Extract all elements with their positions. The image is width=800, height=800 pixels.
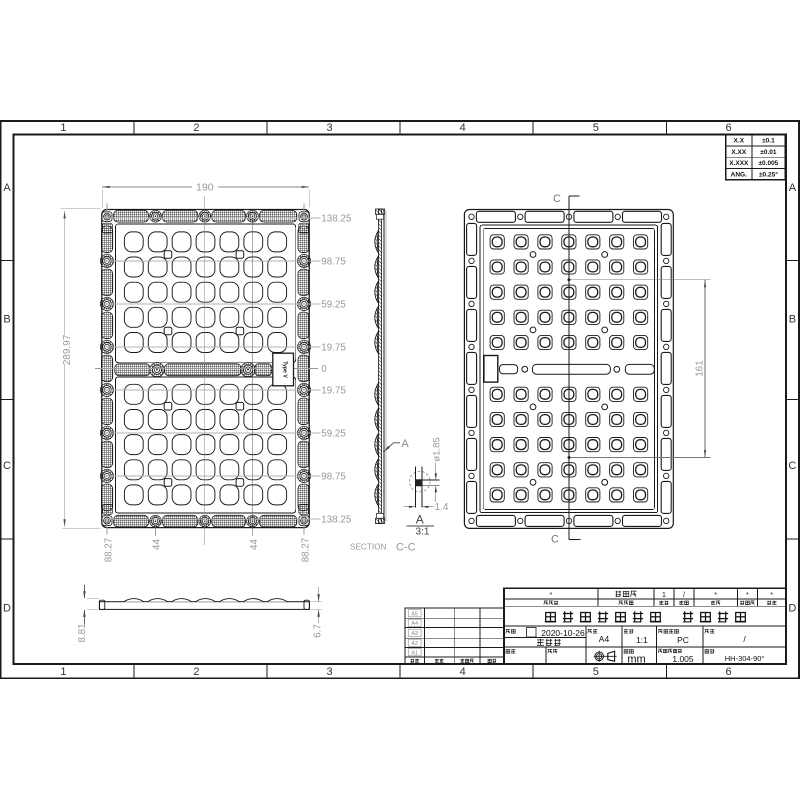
svg-text:±0.1: ±0.1 (762, 138, 775, 145)
svg-text:6.7: 6.7 (313, 624, 324, 638)
svg-text:0: 0 (321, 364, 327, 375)
svg-text:A: A (789, 182, 797, 194)
svg-text:8.81: 8.81 (77, 623, 88, 642)
svg-text:1.4: 1.4 (435, 502, 449, 513)
svg-text:A4: A4 (599, 634, 610, 644)
svg-text:±0.005: ±0.005 (758, 160, 778, 167)
svg-text:A3: A3 (411, 631, 418, 637)
svg-text:4: 4 (460, 666, 466, 678)
svg-text:59.25: 59.25 (321, 299, 346, 310)
svg-text:1: 1 (662, 592, 666, 599)
svg-text:HH-304-90°: HH-304-90° (725, 654, 765, 663)
svg-text:3:1: 3:1 (416, 527, 430, 538)
svg-text:161: 161 (694, 360, 705, 376)
svg-text:*: * (550, 592, 553, 599)
svg-text:C: C (551, 534, 559, 546)
svg-text:19.75: 19.75 (321, 342, 346, 353)
svg-text:Type V: Type V (282, 361, 288, 378)
svg-text:X.X: X.X (734, 138, 745, 145)
svg-text:2020-10-26: 2020-10-26 (541, 628, 585, 638)
svg-text:±0.01: ±0.01 (760, 149, 777, 156)
svg-text:6: 6 (726, 122, 732, 134)
svg-text:1: 1 (60, 122, 66, 134)
svg-text:C: C (553, 193, 561, 205)
svg-text:138.25: 138.25 (321, 213, 352, 224)
svg-text:*: * (714, 592, 717, 599)
svg-text:3: 3 (327, 122, 333, 134)
svg-text:88.27: 88.27 (104, 538, 115, 563)
svg-text:A2: A2 (411, 641, 418, 647)
svg-text:5: 5 (593, 122, 599, 134)
svg-text:B: B (3, 314, 10, 326)
svg-text:1: 1 (60, 666, 66, 678)
svg-text:289.97: 289.97 (62, 334, 73, 365)
svg-text:190: 190 (196, 182, 214, 194)
svg-text:*: * (770, 592, 773, 599)
svg-text:A5: A5 (411, 611, 418, 617)
svg-text:X.XXX: X.XXX (729, 160, 749, 167)
svg-text:C: C (3, 460, 11, 472)
svg-text:98.75: 98.75 (321, 471, 346, 482)
svg-text:/: / (683, 592, 685, 599)
svg-text:A: A (3, 182, 11, 194)
svg-text:2: 2 (193, 122, 199, 134)
svg-text:D: D (3, 602, 11, 614)
svg-text:5: 5 (593, 666, 599, 678)
svg-text:±0.25°: ±0.25° (759, 170, 778, 178)
svg-text:4: 4 (460, 122, 466, 134)
svg-text:D: D (788, 602, 796, 614)
svg-text:ø1.85: ø1.85 (431, 437, 442, 461)
svg-text:C-C: C-C (396, 541, 416, 553)
svg-text:A1: A1 (411, 650, 418, 656)
svg-text:X.XX: X.XX (731, 149, 746, 156)
svg-text:1.005: 1.005 (672, 654, 694, 664)
svg-text:B: B (789, 314, 796, 326)
svg-text:PC: PC (677, 635, 689, 645)
svg-text:98.75: 98.75 (321, 256, 346, 267)
svg-text:3: 3 (327, 666, 333, 678)
svg-text:*: * (746, 592, 749, 599)
svg-text:2: 2 (193, 666, 199, 678)
svg-text:SECTION: SECTION (350, 543, 386, 552)
svg-text:ANG.: ANG. (731, 171, 747, 178)
svg-text:88.27: 88.27 (300, 538, 311, 563)
svg-text:A: A (416, 513, 424, 527)
svg-text:44: 44 (249, 539, 260, 550)
svg-text:19.75: 19.75 (321, 385, 346, 396)
svg-text:6: 6 (726, 666, 732, 678)
svg-text:mm: mm (627, 653, 645, 665)
svg-text:44: 44 (152, 539, 163, 550)
svg-text:59.25: 59.25 (321, 428, 346, 439)
svg-text:138.25: 138.25 (321, 514, 352, 525)
svg-text:A: A (401, 438, 409, 450)
svg-text:1:1: 1:1 (636, 635, 648, 645)
svg-text:A4: A4 (411, 621, 418, 627)
svg-text:C: C (788, 460, 796, 472)
